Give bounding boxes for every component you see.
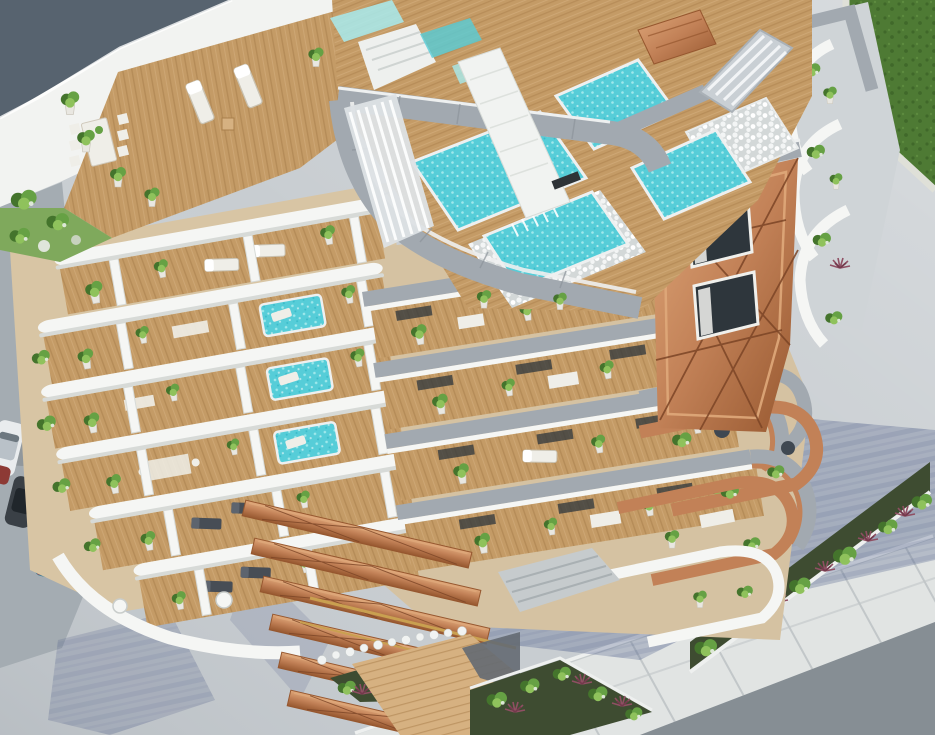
aerial-render <box>0 0 935 735</box>
side-table <box>222 118 234 130</box>
render-canvas <box>0 0 935 735</box>
lobby-column <box>216 592 232 608</box>
lobby-column <box>113 599 127 613</box>
